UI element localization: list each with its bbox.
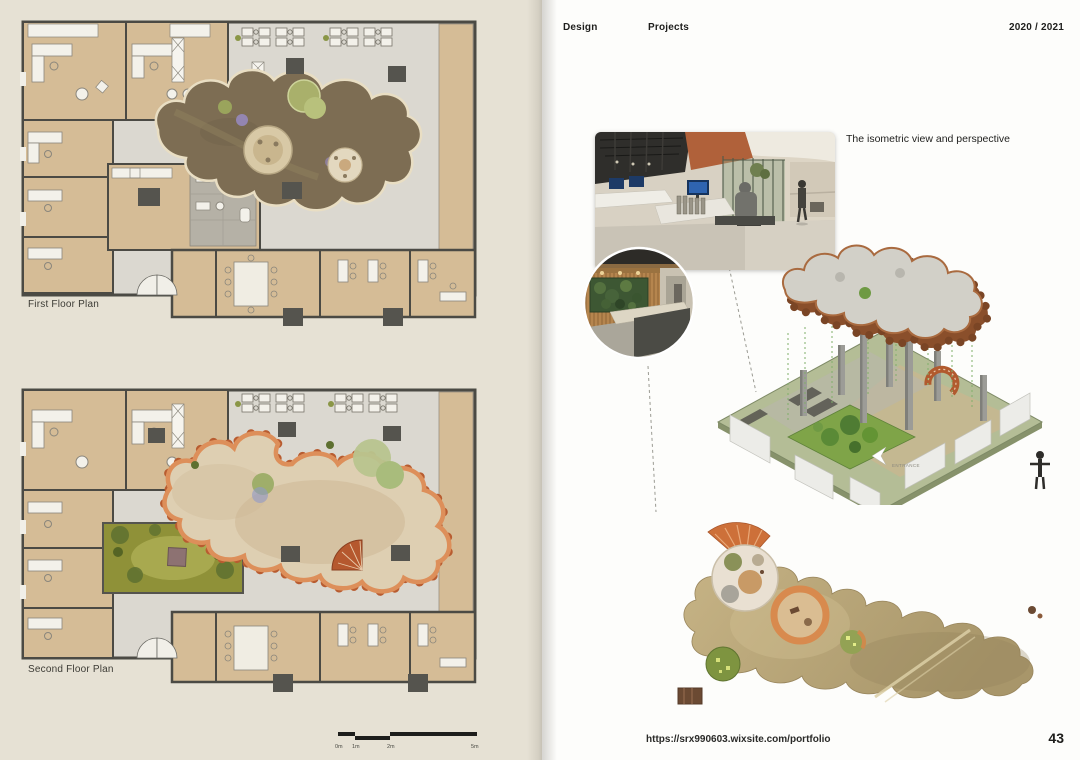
header-year: 2020 / 2021	[930, 22, 1064, 33]
header-projects: Projects	[648, 22, 689, 33]
scale-1m: 1m	[352, 744, 360, 750]
scale-0m: 0m	[335, 744, 343, 750]
entrance-label: ENTRANCE	[892, 463, 920, 468]
isometric-view: ENTRANCE	[700, 215, 1070, 505]
bottom-offices	[172, 250, 475, 317]
human-figure	[1030, 452, 1050, 490]
page-number: 43	[1020, 730, 1064, 746]
header-design: Design	[563, 22, 598, 33]
cream-pod	[708, 523, 778, 611]
first-floor-plan-label: First Floor Plan	[28, 299, 99, 310]
portfolio-url: https://srx990603.wixsite.com/portfolio	[646, 734, 831, 745]
green-pod	[706, 647, 740, 681]
blob-roof-perspective	[640, 512, 1060, 712]
floating-blob-roof	[783, 246, 988, 348]
second-floor-plan-label: Second Floor Plan	[28, 664, 114, 675]
orange-ring-pod	[774, 589, 826, 641]
isometric-annotation: The isometric view and perspective	[846, 133, 1010, 145]
corridor-strip	[439, 24, 473, 264]
scale-2m: 2m	[387, 744, 395, 750]
scale-bar: 0m 1m 2m 5m	[333, 726, 483, 752]
reception-photo-circle	[582, 246, 696, 360]
first-floor-plan-drawing	[20, 12, 480, 347]
scale-5m: 5m	[471, 744, 479, 750]
